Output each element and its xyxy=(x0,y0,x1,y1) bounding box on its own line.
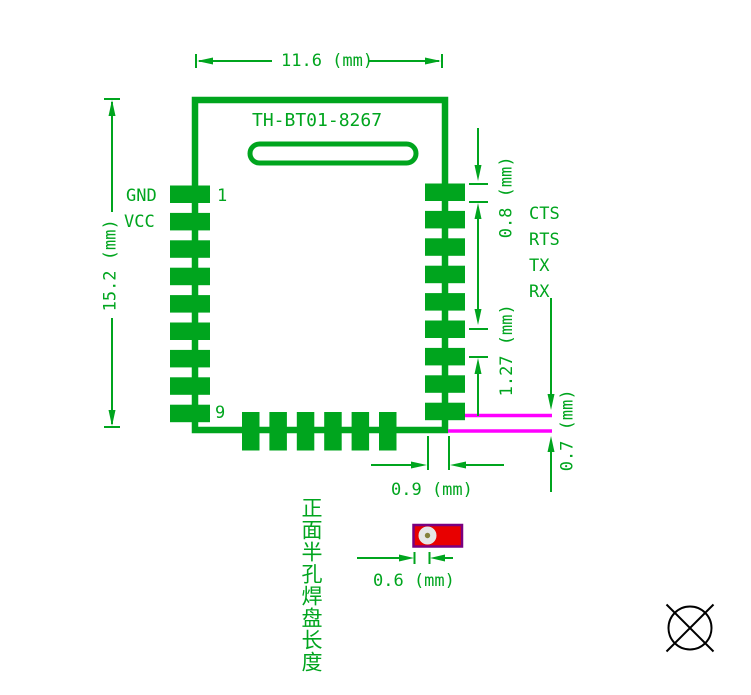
pin-number-1: 1 xyxy=(217,187,227,206)
pad xyxy=(242,412,260,451)
pad xyxy=(425,184,465,202)
right-pad-column xyxy=(425,184,465,421)
dim-pad-length: 0.9 (mm) xyxy=(391,481,473,500)
half-hole-dimension xyxy=(357,552,453,564)
pin-label-cts: CTS xyxy=(529,205,560,224)
antenna-slot xyxy=(250,144,416,163)
pad xyxy=(352,412,370,451)
dim-module-width: 11.6 (mm) xyxy=(281,52,373,71)
pin-label-rx: RX xyxy=(529,283,549,302)
dim-half-hole-diameter: 0.6 (mm) xyxy=(373,572,455,591)
dim-pad-pitch: 1.27 (mm) xyxy=(498,303,517,398)
pad xyxy=(170,186,210,204)
module-outline xyxy=(195,100,445,430)
pad xyxy=(297,412,315,451)
pad xyxy=(425,266,465,284)
pad xyxy=(170,323,210,341)
pin-label-rts: RTS xyxy=(529,231,560,250)
pad xyxy=(170,213,210,231)
hole-center-dot xyxy=(425,533,430,538)
half-hole-note: 正面半孔焊盘长度 xyxy=(300,497,321,673)
pad xyxy=(170,377,210,395)
pad xyxy=(170,405,210,423)
pin-label-gnd: GND xyxy=(126,187,157,206)
pad-width-dimension xyxy=(469,128,488,309)
dim-edge-offset: 0.7 (mm) xyxy=(559,385,578,475)
pin-label-tx: TX xyxy=(529,257,549,276)
pad xyxy=(425,348,465,366)
half-hole-pad-detail xyxy=(414,525,463,547)
edge-offset-dimension xyxy=(548,298,555,492)
pad xyxy=(425,375,465,393)
pad xyxy=(425,321,465,339)
pad xyxy=(170,350,210,368)
pad xyxy=(425,238,465,256)
pad xyxy=(425,211,465,229)
pad xyxy=(324,412,342,451)
crossed-circle-symbol xyxy=(667,605,714,652)
pin-number-9: 9 xyxy=(215,404,225,423)
pcb-footprint-drawing: 11.6 (mm) TH-BT01-8267 GND VCC 1 9 CTS R… xyxy=(0,0,751,695)
pad xyxy=(170,268,210,286)
pad xyxy=(170,295,210,313)
dim-module-height: 15.2 (mm) xyxy=(102,210,121,320)
pad xyxy=(170,240,210,257)
module-title: TH-BT01-8267 xyxy=(252,111,382,131)
pad-pitch-dimension xyxy=(469,309,488,416)
dim-pad-width: 0.8 (mm) xyxy=(498,152,517,242)
pin-label-vcc: VCC xyxy=(124,213,155,232)
pad xyxy=(379,412,397,451)
cross-icon xyxy=(667,605,714,652)
pad xyxy=(425,293,465,311)
left-pad-column xyxy=(170,186,210,423)
pad xyxy=(425,403,465,421)
pad xyxy=(269,412,287,451)
